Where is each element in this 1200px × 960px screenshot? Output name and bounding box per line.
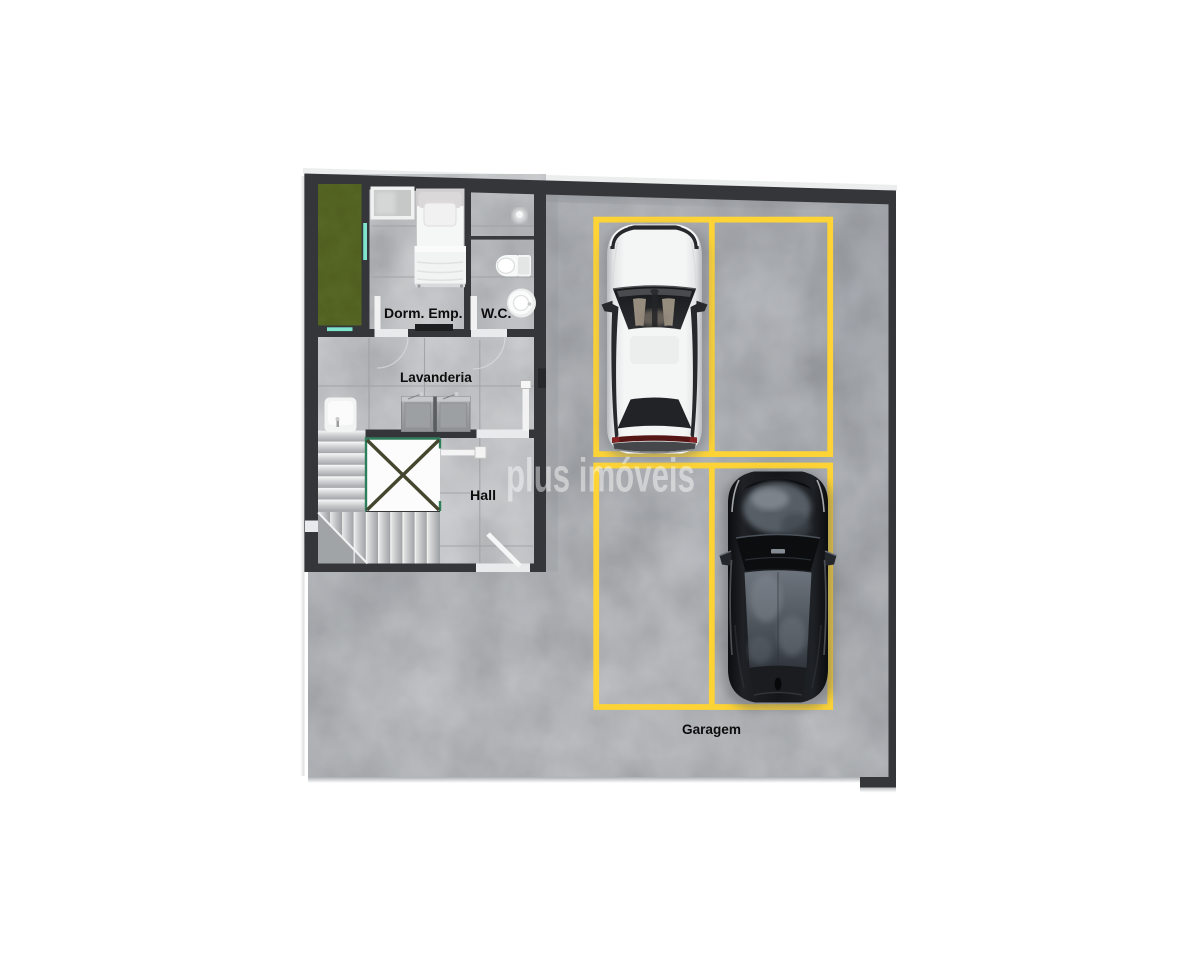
svg-text:W.C.: W.C. <box>481 305 511 321</box>
svg-text:Dorm. Emp.: Dorm. Emp. <box>384 305 463 321</box>
svg-text:plus imóveis: plus imóveis <box>506 450 695 502</box>
svg-text:Lavanderia: Lavanderia <box>400 370 472 385</box>
svg-text:Hall: Hall <box>470 488 496 504</box>
svg-text:Garagem: Garagem <box>682 722 741 737</box>
